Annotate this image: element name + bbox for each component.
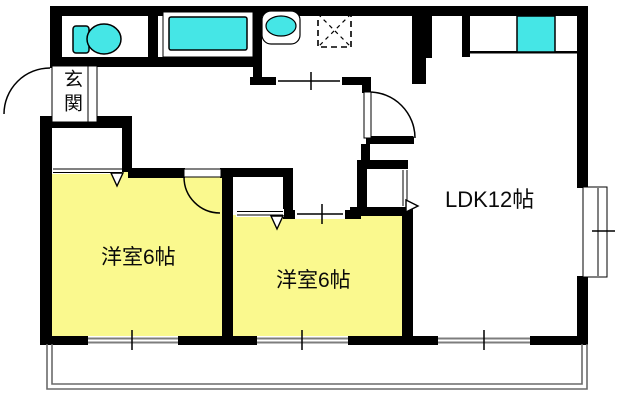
washing-machine-space-icon bbox=[318, 14, 351, 47]
ldk-door bbox=[364, 92, 415, 138]
room-label-ldk: LDK12帖 bbox=[445, 182, 534, 214]
room-label-genkan: 玄関 bbox=[58, 69, 85, 117]
kitchen-sink-icon bbox=[517, 16, 555, 52]
entrance-door-arc bbox=[4, 68, 50, 114]
shoe-cabinet bbox=[88, 66, 97, 122]
floor-plan: 玄関 洋室6帖 洋室6帖 LDK12帖 bbox=[0, 0, 622, 401]
room-label-bedroom2: 洋室6帖 bbox=[276, 264, 351, 294]
bathtub-icon bbox=[163, 12, 253, 57]
balcony bbox=[47, 344, 587, 389]
washroom-sliding-door bbox=[276, 72, 342, 90]
windows bbox=[88, 339, 530, 343]
bay-window bbox=[583, 187, 615, 277]
toilet-icon bbox=[73, 24, 121, 54]
washbasin-icon bbox=[262, 11, 300, 44]
ldk-closet-door bbox=[403, 170, 418, 212]
room-label-bedroom1: 洋室6帖 bbox=[101, 241, 176, 271]
